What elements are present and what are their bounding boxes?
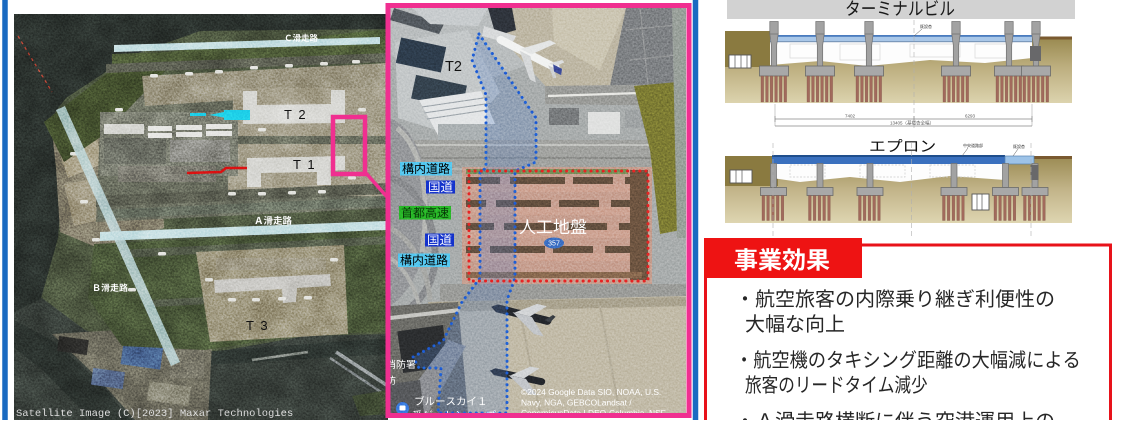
svg-text:中央道路部: 中央道路部 [963, 142, 983, 148]
svg-text:既設杏: 既設杏 [920, 23, 932, 29]
svg-text:既設杏: 既設杏 [1013, 143, 1025, 149]
svg-text:7402: 7402 [845, 114, 856, 119]
svg-text:6293: 6293 [965, 114, 976, 119]
svg-text:13405（基禌杏全幅）: 13405（基禌杏全幅） [890, 120, 934, 127]
